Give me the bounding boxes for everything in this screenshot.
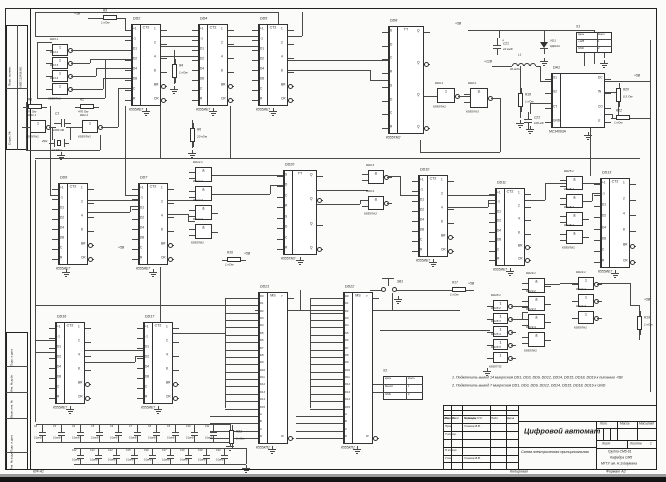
- ic-pin-label: D4: [140, 226, 144, 230]
- inversion-circle: [630, 260, 635, 265]
- ic-part-number: К555ИЕ7: [129, 108, 143, 112]
- table-cell: 2: [408, 393, 409, 396]
- gate-pin: [560, 216, 566, 217]
- ic-pin-label: BR: [154, 83, 158, 87]
- gate-part-number: К555ЛН1: [78, 135, 91, 138]
- ic-pin-label: 1: [166, 325, 168, 329]
- wire: [160, 106, 161, 158]
- ic-pin: [252, 364, 258, 365]
- decap-value: 0,1мкФ: [162, 459, 169, 461]
- ic-pin-label: D15: [345, 406, 350, 409]
- ic-pin-label: R: [390, 125, 392, 129]
- ic-pin-label: S: [285, 215, 287, 219]
- title-block-title: Цифровой автомат: [524, 428, 600, 436]
- resistor-R16: [227, 257, 241, 262]
- ic-pin-label: BR: [78, 381, 82, 385]
- gate-DD1.2: 1: [82, 120, 98, 133]
- ic-pin: [88, 231, 94, 232]
- ic-pin: [525, 220, 531, 221]
- org-line-2: Кафедра СМ5: [610, 456, 632, 460]
- wire: [212, 175, 283, 176]
- inversion-circle: [525, 258, 530, 263]
- ic-pin-label: D2: [200, 57, 204, 61]
- gate-designator: DD19.4: [526, 326, 536, 329]
- ic-function-label: MS: [352, 294, 365, 298]
- gate-pin: [511, 319, 516, 320]
- ic-pin: [137, 328, 143, 329]
- ic-pin-label: D: [345, 435, 347, 438]
- gate-part-number: К555ТЛ2: [489, 365, 501, 368]
- resistor-value: 470 Ом: [78, 110, 88, 113]
- gate-designator: DD12.2: [193, 180, 203, 183]
- ic-pin-label: R: [390, 70, 392, 74]
- ground-bar: [62, 272, 70, 273]
- wire: [370, 80, 388, 81]
- ic-pin-label: BR: [281, 83, 285, 87]
- ic-part-number: К555ИЕ7: [196, 108, 210, 112]
- ic-pin: [132, 239, 138, 240]
- ic-pin-label: R: [260, 97, 262, 101]
- title-block-line: [443, 410, 518, 411]
- ic-pin: [630, 215, 636, 216]
- ic-pin-label: D8: [140, 236, 144, 240]
- ic-pin-label: 4: [623, 212, 625, 216]
- decap-lead: [80, 458, 81, 465]
- wire: [37, 42, 38, 98]
- ic-function-label: CT2: [609, 180, 622, 184]
- ic-pin: [252, 372, 258, 373]
- ic-pin-label: D: [390, 43, 392, 47]
- table-cell: GND: [385, 393, 391, 396]
- gate-designator: DD12.3: [193, 199, 203, 202]
- gate-pin: [583, 183, 589, 184]
- ic-pin-label: C: [497, 248, 499, 252]
- ic-pin: [489, 194, 495, 195]
- ic-pin: [85, 356, 91, 357]
- ic-pin-label: 4: [161, 214, 163, 218]
- wire: [448, 195, 495, 196]
- ic-pin: [382, 32, 388, 33]
- ic-pin: [192, 60, 198, 61]
- wire: [168, 214, 188, 215]
- gate-symbol-and: &: [533, 279, 541, 284]
- wire: [88, 200, 138, 201]
- ic-pin-label: D2: [497, 219, 501, 223]
- margin-doc-number: АБВГ.123456.001: [19, 67, 22, 88]
- ic-pin-label: D2: [260, 57, 264, 61]
- ic-pin-label: D7: [345, 347, 348, 350]
- ic-pin-label: D2: [260, 310, 263, 313]
- gate-pin: [189, 210, 195, 211]
- decap-plate: [191, 432, 198, 433]
- decap-lead: [170, 458, 171, 465]
- decap-designator: C7: [129, 425, 132, 428]
- ic-pin: [252, 50, 258, 51]
- wire: [36, 424, 230, 425]
- decap-plate: [172, 435, 179, 436]
- resistor-lead: [630, 118, 635, 119]
- wire: [288, 310, 300, 311]
- ic-pin-label: CR: [518, 257, 523, 261]
- gate-symbol-inverter: 1: [87, 121, 94, 126]
- ic-pin-label: D4: [133, 67, 137, 71]
- decap-plate: [39, 432, 46, 433]
- ic-pin-label: C: [133, 87, 135, 91]
- decap-lead: [194, 424, 195, 432]
- ic-pin: [288, 72, 294, 73]
- ic-pin-label: +1: [260, 27, 264, 31]
- ic-part-number: К555ИЕ7: [493, 268, 507, 272]
- ic-DD20: TT: [283, 170, 317, 255]
- decap-plate: [77, 432, 84, 433]
- gate-pin: [560, 186, 566, 187]
- gate-part-number: К555ЛН1: [433, 105, 446, 108]
- ic-pin: [137, 378, 143, 379]
- ic-designator: DD10: [420, 168, 429, 172]
- stamp-line: [6, 418, 28, 419]
- inversion-circle: [525, 245, 530, 250]
- ic-pin-label: D4: [260, 67, 264, 71]
- ic-pin-label: C: [390, 111, 392, 115]
- ground-bar: [429, 262, 437, 263]
- ic-pin: [489, 213, 495, 214]
- ic-pin-label: CR: [166, 395, 171, 399]
- decap-designator: C14: [108, 449, 112, 452]
- ic-pin-label: -1: [140, 196, 143, 200]
- wire: [317, 190, 368, 191]
- ic-pin: [252, 305, 258, 306]
- sheet-label: Лист: [602, 442, 610, 446]
- wire: [545, 183, 566, 184]
- ground-bar: [65, 276, 67, 277]
- ground-bar: [298, 262, 303, 263]
- gate-symbol-inverter: 1: [497, 301, 504, 306]
- ground-bar: [271, 453, 273, 454]
- decap-designator: C3: [53, 425, 56, 428]
- ic-pin: [448, 209, 454, 210]
- margin-label-sprav-no: Справ. №: [8, 126, 11, 150]
- ic-pin-label: Q: [417, 125, 419, 129]
- ic-pin-label: D: [260, 435, 262, 438]
- ic-pin-label: D4: [145, 365, 149, 369]
- gate-designator: DD12.1: [193, 161, 203, 164]
- resistor-R21: [229, 430, 234, 444]
- gate-designator: DD19.3: [526, 308, 536, 311]
- gate-pin: [560, 204, 566, 205]
- ic-pin-label: 2: [281, 41, 283, 45]
- resistor-value: 470 Ом: [26, 110, 36, 113]
- gate-pin: [522, 343, 528, 344]
- ic-pin-label: R: [145, 395, 147, 399]
- ic-pin-label: D10: [345, 369, 350, 372]
- decap-designator: C19: [198, 449, 202, 452]
- decap-value: 0,1мкФ: [198, 459, 205, 461]
- resistor-R2: [80, 104, 94, 109]
- wire: [530, 103, 531, 114]
- resistor-value: 1 кОм: [225, 263, 233, 266]
- ic-pin: [85, 342, 91, 343]
- resistor-value: 1 кОм: [525, 100, 533, 103]
- ic-pin: [594, 240, 600, 241]
- ground-bar: [614, 277, 616, 278]
- org-line-3: МГТУ им. Н.Э.Баумана: [601, 462, 637, 466]
- ic-pin: [337, 327, 343, 328]
- resistor-lead: [193, 142, 194, 147]
- ground-bar: [157, 413, 159, 414]
- resistor-designator: R3: [103, 9, 107, 13]
- ic-pin: [382, 73, 388, 74]
- ground-bar: [526, 129, 534, 130]
- ic-pin-label: 4: [281, 55, 283, 59]
- decap-plate: [131, 455, 138, 456]
- ic-pin-label: D1: [133, 47, 137, 51]
- decap-designator: C18: [180, 449, 184, 452]
- ic-pin-label: C: [390, 56, 392, 60]
- decap-lead: [213, 424, 214, 432]
- wire-fan: [296, 423, 343, 424]
- decap-plate: [210, 435, 217, 436]
- ic-function-label: CT2: [504, 190, 517, 194]
- ic-pin: [337, 431, 343, 432]
- decap-plate: [153, 432, 160, 433]
- ic-pin: [382, 59, 388, 60]
- ic-pin: [337, 416, 343, 417]
- sign-row-label: Н.контр.: [445, 449, 457, 452]
- ic-pin-label: D1: [145, 345, 149, 349]
- ic-pin-label: Q: [310, 246, 312, 250]
- ic-part-number: К555ИЕ7: [598, 270, 612, 274]
- ic-pin-label: C: [200, 87, 202, 91]
- ic-pin-label: D13: [260, 391, 265, 394]
- decap-lead: [116, 458, 117, 465]
- ic-DD8: TT: [388, 26, 424, 134]
- wire: [288, 70, 370, 71]
- resistor-value: 0,3 Ом: [623, 95, 633, 98]
- decap-lead: [99, 424, 100, 432]
- decap-designator: C15: [126, 449, 130, 452]
- ic-pin: [173, 370, 179, 371]
- decap-lead: [206, 458, 207, 465]
- gate-pin: [362, 174, 368, 175]
- ground-bar: [151, 274, 156, 275]
- gate-DD9.4: &: [368, 196, 384, 210]
- ground-bar: [586, 137, 591, 138]
- decap-plate: [172, 432, 179, 433]
- stamp-line: [17, 25, 18, 150]
- ic-pin-label: C: [285, 194, 287, 198]
- ic-pin: [605, 79, 611, 80]
- gate-pin: [189, 197, 195, 198]
- ic-pin-label: -1: [200, 37, 203, 41]
- capacitor-lead: [54, 123, 61, 124]
- decap-designator: C6: [110, 425, 113, 428]
- gate-pin: [572, 318, 578, 319]
- capacitor-value: 1000 пФ: [53, 129, 64, 132]
- ic-pin-label: R: [497, 257, 499, 261]
- ic-pin: [545, 122, 551, 123]
- margin-label-perv-primen: Перв. примен.: [8, 64, 11, 88]
- decap-lead: [42, 424, 43, 432]
- ic-pin-label: D14: [345, 398, 350, 401]
- resistor-R4: [172, 64, 177, 78]
- ic-pin: [489, 222, 495, 223]
- ic-pin-label: D2: [602, 214, 606, 218]
- gate-pin: [545, 286, 551, 287]
- ic-pin: [137, 398, 143, 399]
- gate-pin: [487, 358, 493, 359]
- gate-designator: DD15.2: [564, 188, 574, 191]
- inversion-circle: [288, 84, 293, 89]
- ic-pin: [277, 186, 283, 187]
- margin-label-4: Инв. № подл.: [10, 464, 13, 470]
- ground-bar: [529, 133, 531, 134]
- ic-pin-label: 1: [78, 325, 80, 329]
- wire: [288, 36, 302, 37]
- ic-pin-label: C: [140, 246, 142, 250]
- gate-pin: [560, 198, 566, 199]
- ic-pin: [228, 44, 234, 45]
- gate-part-number: К555ЛИ1: [191, 241, 204, 244]
- decap-value: 0,1мкФ: [186, 437, 193, 439]
- table-header: Цепь: [578, 33, 584, 36]
- wire: [35, 305, 240, 306]
- ic-pin: [168, 189, 174, 190]
- ic-pin-label: -1: [133, 37, 136, 41]
- ic-pin: [337, 394, 343, 395]
- resistor-lead: [640, 330, 641, 335]
- decap-plate: [185, 455, 192, 456]
- ground-bar: [152, 276, 154, 277]
- wire: [135, 356, 143, 357]
- inversion-circle: [85, 382, 90, 387]
- gate-pin: [189, 191, 195, 192]
- ic-pin: [85, 328, 91, 329]
- gate-designator: DD15.3: [564, 206, 574, 209]
- ic-pin-label: 2: [441, 192, 443, 196]
- ic-pin: [125, 90, 131, 91]
- table-header: Конт.: [408, 377, 415, 380]
- ground-bar: [188, 153, 196, 154]
- ic-pin: [132, 219, 138, 220]
- ic-pin-label: D5: [260, 332, 263, 335]
- ic-pin-label: BR: [166, 381, 170, 385]
- gate-DD1.1: 1: [30, 120, 46, 133]
- decap-plate: [58, 435, 65, 436]
- table-cell: Выход: [385, 385, 393, 388]
- button-designator: SB1: [397, 280, 403, 284]
- wire: [317, 204, 360, 205]
- decap-lead: [61, 424, 62, 432]
- ic-pin: [605, 122, 611, 123]
- ic-pin-label: -1: [497, 200, 500, 204]
- ic-part-number: К555ИЕ7: [56, 267, 70, 271]
- ic-pin: [252, 350, 258, 351]
- ic-pin: [412, 251, 418, 252]
- decap-designator: C13: [90, 449, 94, 452]
- ic-pin-label: R: [60, 256, 62, 260]
- ic-designator: DD11: [497, 181, 506, 185]
- ic-pin-label: D14: [260, 398, 265, 401]
- ic-pin: [337, 372, 343, 373]
- ic-pin: [192, 30, 198, 31]
- ground-bar: [587, 139, 589, 140]
- ic-pin-label: S2: [553, 90, 557, 94]
- wire: [36, 442, 230, 443]
- ic-pin: [525, 234, 531, 235]
- wire: [85, 350, 143, 351]
- decap-value: 0,1мкФ: [110, 437, 117, 439]
- wire: [373, 310, 392, 311]
- ic-pin: [288, 30, 294, 31]
- wire: [448, 207, 488, 208]
- ground-bar: [516, 123, 524, 124]
- ic-pin-label: CR: [441, 248, 446, 252]
- ground-bar: [170, 89, 178, 90]
- ic-pin-label: 1: [623, 181, 625, 185]
- gate-symbol-inverter: 1: [497, 327, 504, 332]
- ic-pin-label: D1: [602, 203, 606, 207]
- gate-pin: [189, 216, 195, 217]
- ic-pin: [252, 394, 258, 395]
- sign-row-label: Утв.: [445, 457, 452, 460]
- ic-pin-label: CR: [78, 395, 83, 399]
- resistor-lead: [232, 425, 233, 430]
- ground-bar: [611, 273, 619, 274]
- ic-pin-label: 2: [221, 41, 223, 45]
- ic-part-number: МС34063А: [549, 130, 566, 134]
- ic-pin: [192, 70, 198, 71]
- ic-pin-label: D1: [260, 47, 264, 51]
- ic-pin-label: 2: [81, 200, 83, 204]
- title-block-line: [518, 405, 519, 470]
- gate-pin: [597, 318, 602, 319]
- wire: [35, 352, 55, 353]
- wire: [125, 18, 126, 30]
- ground-bar: [432, 266, 434, 267]
- gate-symbol-and: &: [475, 89, 483, 94]
- margin-label-3: Подп. и дата: [10, 440, 13, 452]
- gate-DD9.3: &: [368, 170, 384, 184]
- note-2: 2. Подключить вывод 7 микросхем DD1, DD3…: [452, 384, 605, 388]
- ic-pin: [125, 100, 131, 101]
- ic-pin-label: C: [285, 236, 287, 240]
- ic-pin-label: 1: [441, 178, 443, 182]
- gate-pin: [522, 337, 528, 338]
- decap-plate: [58, 432, 65, 433]
- decap-plate: [134, 432, 141, 433]
- gate-pin: [464, 94, 470, 95]
- decap-lead: [80, 424, 81, 432]
- ic-pin-label: -1: [420, 188, 423, 192]
- gate-pin: [71, 89, 76, 90]
- ic-pin: [49, 328, 55, 329]
- wire: [420, 140, 421, 152]
- gate-part-number: К555ЛН1: [26, 135, 39, 138]
- ic-part-number: К555ИЕ7: [141, 406, 155, 410]
- capacitor-value: 22 мкФ: [503, 48, 513, 51]
- ic-pin: [168, 217, 174, 218]
- ic-pin: [49, 398, 55, 399]
- title-block-line: [443, 462, 518, 463]
- decap-lead: [213, 435, 214, 443]
- ic-pin: [489, 232, 495, 233]
- capacitor-designator: C21: [503, 42, 509, 46]
- gate-pin: [46, 89, 52, 90]
- ic-pin: [594, 206, 600, 207]
- ic-pin-label: 1: [154, 27, 156, 31]
- ic-pin: [412, 191, 418, 192]
- ic-pin: [337, 364, 343, 365]
